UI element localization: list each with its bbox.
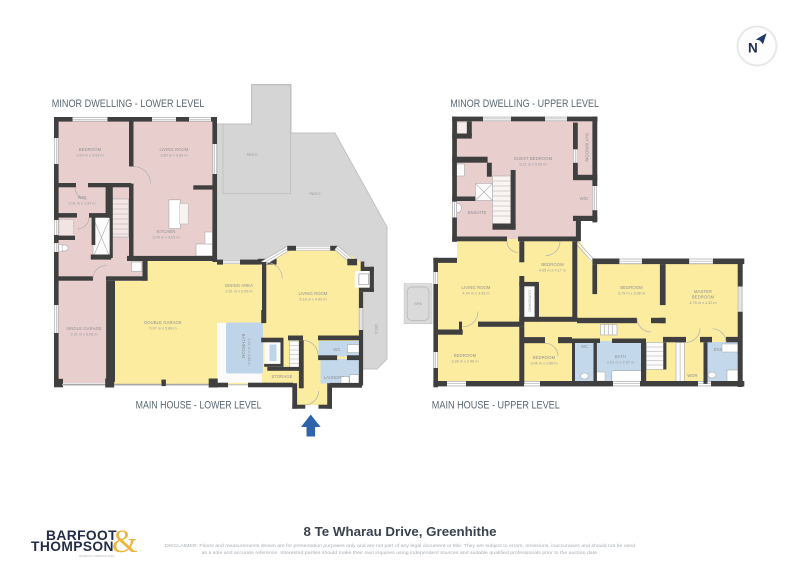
svg-text:MINOR DWELLING - LOWER LEVEL: MINOR DWELLING - LOWER LEVEL xyxy=(52,98,205,110)
svg-text:WC: WC xyxy=(581,344,588,349)
svg-text:CUPBOARD: CUPBOARD xyxy=(528,290,532,312)
svg-text:2.91 m x 6.06 m: 2.91 m x 6.06 m xyxy=(70,333,97,337)
svg-text:STORAGE: STORAGE xyxy=(271,374,292,379)
svg-text:3.05 m x 3.03 m: 3.05 m x 3.03 m xyxy=(152,236,179,240)
svg-text:SPA: SPA xyxy=(414,302,422,306)
svg-text:3.54 m x 3.53 m: 3.54 m x 3.53 m xyxy=(76,154,103,158)
svg-text:WIR: WIR xyxy=(78,195,86,200)
svg-text:SINGLE GARAGE: SINGLE GARAGE xyxy=(66,326,102,331)
svg-text:5.97 m x 5.88 m: 5.97 m x 5.88 m xyxy=(149,327,176,331)
svg-text:N: N xyxy=(748,41,758,56)
svg-text:DOUBLE GARAGE: DOUBLE GARAGE xyxy=(144,320,182,325)
svg-text:RESIDENTIAL COMMERCIAL RURAL: RESIDENTIAL COMMERCIAL RURAL xyxy=(79,554,115,558)
svg-text:WC: WC xyxy=(333,347,340,352)
svg-text:3.79 m x 3.06 m: 3.79 m x 3.06 m xyxy=(618,292,645,296)
svg-text:BEDROOM: BEDROOM xyxy=(541,262,564,267)
svg-text:2.61 m x 2.67 m: 2.61 m x 2.67 m xyxy=(607,361,634,365)
svg-text:5.16 m x 4.62 m: 5.16 m x 4.62 m xyxy=(299,298,326,302)
svg-text:2.81 m x 3.05 m: 2.81 m x 3.05 m xyxy=(225,290,252,294)
svg-text:5.21 m x 5.05 m: 5.21 m x 5.05 m xyxy=(519,163,546,167)
svg-text:THOMPSON: THOMPSON xyxy=(31,539,114,554)
svg-text:MAIN HOUSE - LOWER LEVEL: MAIN HOUSE - LOWER LEVEL xyxy=(136,400,262,412)
svg-text:GUEST BEDROOM: GUEST BEDROOM xyxy=(514,156,553,161)
svg-text:4.05 m x 4.17 m: 4.05 m x 4.17 m xyxy=(539,269,566,273)
svg-text:BATHROOM: BATHROOM xyxy=(241,334,246,359)
svg-text:BAY WINDOW: BAY WINDOW xyxy=(585,133,590,162)
svg-text:WDR: WDR xyxy=(687,373,697,378)
svg-text:&: & xyxy=(112,524,138,560)
svg-text:BATH: BATH xyxy=(615,354,626,359)
svg-text:8 Te Wharau Drive, Greenhithe: 8 Te Wharau Drive, Greenhithe xyxy=(304,524,497,539)
svg-text:MAIN HOUSE - UPPER LEVEL: MAIN HOUSE - UPPER LEVEL xyxy=(432,400,560,412)
svg-text:DINING AREA: DINING AREA xyxy=(225,283,253,288)
svg-text:4.75 m x 4.32 m: 4.75 m x 4.32 m xyxy=(689,301,716,305)
svg-text:BEDROOM: BEDROOM xyxy=(620,285,643,290)
svg-text:KITCHEN: KITCHEN xyxy=(156,229,175,234)
svg-text:PATIO: PATIO xyxy=(247,153,258,157)
svg-text:PATIO: PATIO xyxy=(310,192,321,196)
svg-text:as a sole and accurate referen: as a sole and accurate reference. Intere… xyxy=(202,550,599,555)
svg-text:LIVING ROOM: LIVING ROOM xyxy=(298,291,327,296)
svg-text:3.80 m x 3.80 m: 3.80 m x 3.80 m xyxy=(160,154,187,158)
svg-text:BEDROOM: BEDROOM xyxy=(454,353,477,358)
svg-text:3.06 m x 2.86 m: 3.06 m x 2.86 m xyxy=(530,362,557,366)
svg-text:ENSUITE: ENSUITE xyxy=(468,210,487,215)
svg-text:BEDROOM: BEDROOM xyxy=(692,295,715,300)
svg-text:DECK: DECK xyxy=(374,324,378,335)
svg-text:LIVING ROOM: LIVING ROOM xyxy=(461,285,490,290)
svg-text:DISCLAIMER: Floors and measure: DISCLAIMER: Floors and measurements show… xyxy=(165,543,635,548)
svg-text:2.61 m x 3.82 m: 2.61 m x 3.82 m xyxy=(247,338,251,365)
svg-text:MASTER: MASTER xyxy=(694,289,712,294)
svg-text:4.24 m x 3.95 m: 4.24 m x 3.95 m xyxy=(462,292,489,296)
svg-text:LIVING ROOM: LIVING ROOM xyxy=(159,147,188,152)
svg-text:BEDROOM: BEDROOM xyxy=(533,355,556,360)
svg-text:2.01 m x 1.87 m: 2.01 m x 1.87 m xyxy=(68,202,95,206)
svg-text:3.28 m x 2.46 m: 3.28 m x 2.46 m xyxy=(451,360,478,364)
svg-text:MINOR DWELLING - UPPER LEVEL: MINOR DWELLING - UPPER LEVEL xyxy=(450,98,599,110)
svg-text:W/D: W/D xyxy=(580,196,588,201)
svg-text:BEDROOM: BEDROOM xyxy=(79,147,102,152)
